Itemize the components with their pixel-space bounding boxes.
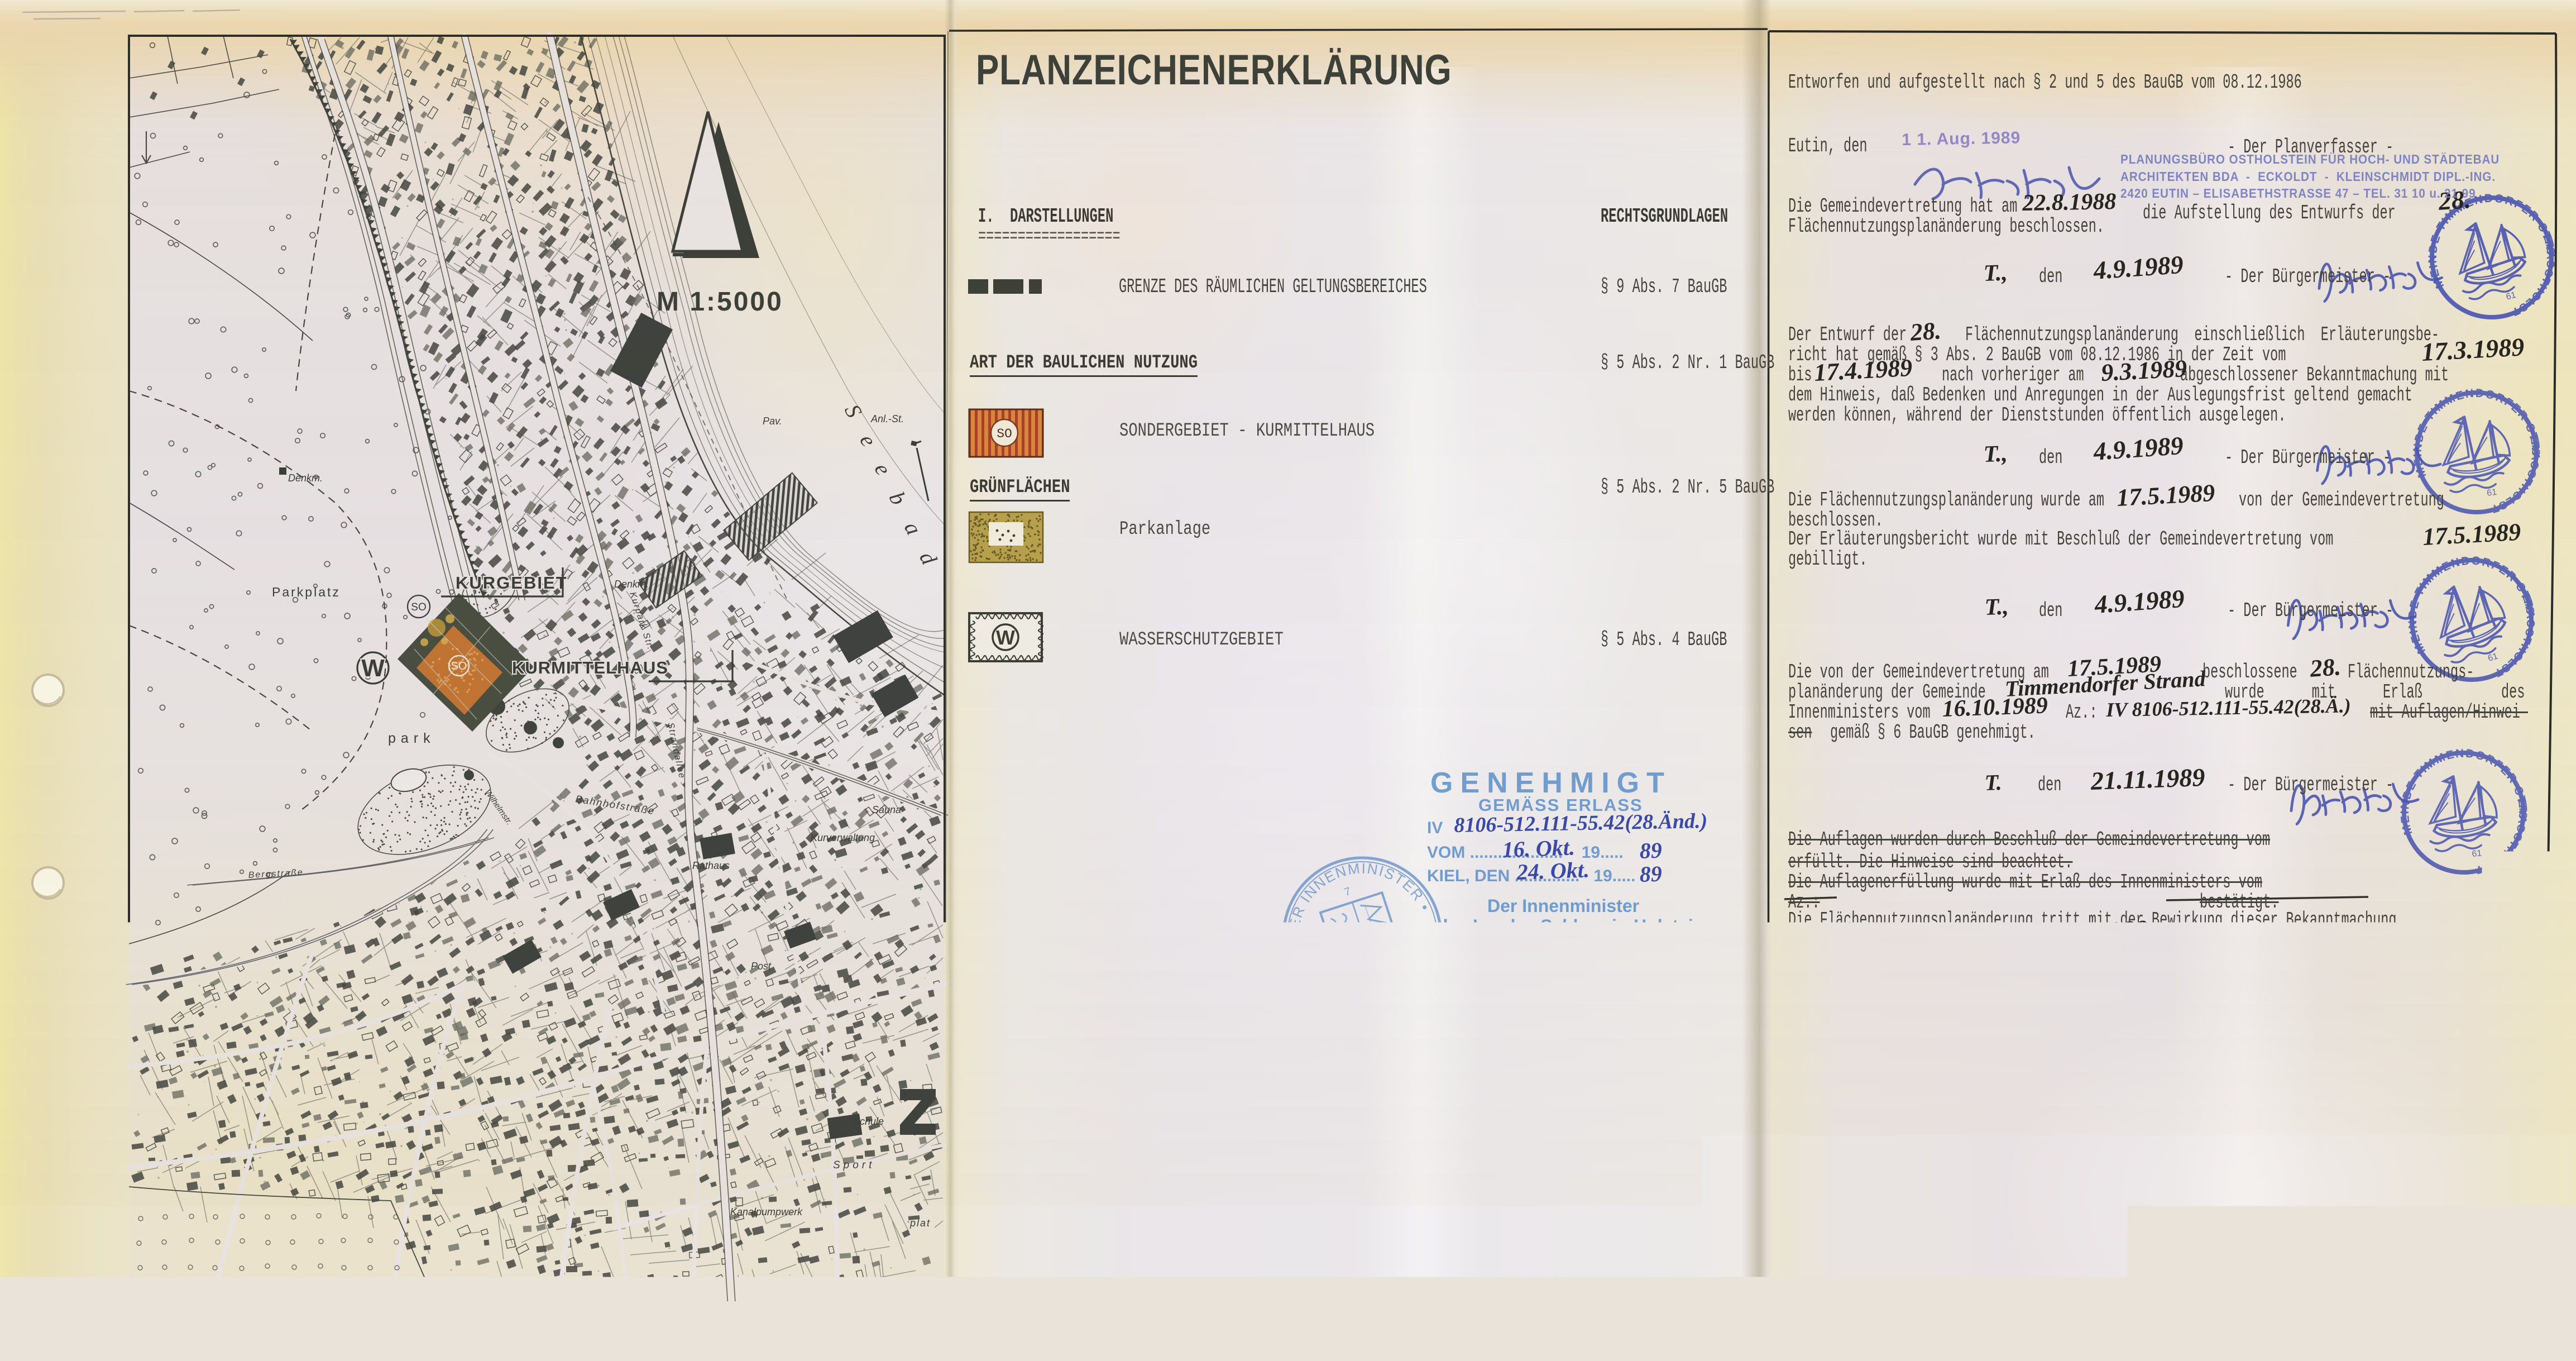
svg-text:W: W	[996, 626, 1015, 649]
svg-text:SO: SO	[997, 427, 1012, 441]
